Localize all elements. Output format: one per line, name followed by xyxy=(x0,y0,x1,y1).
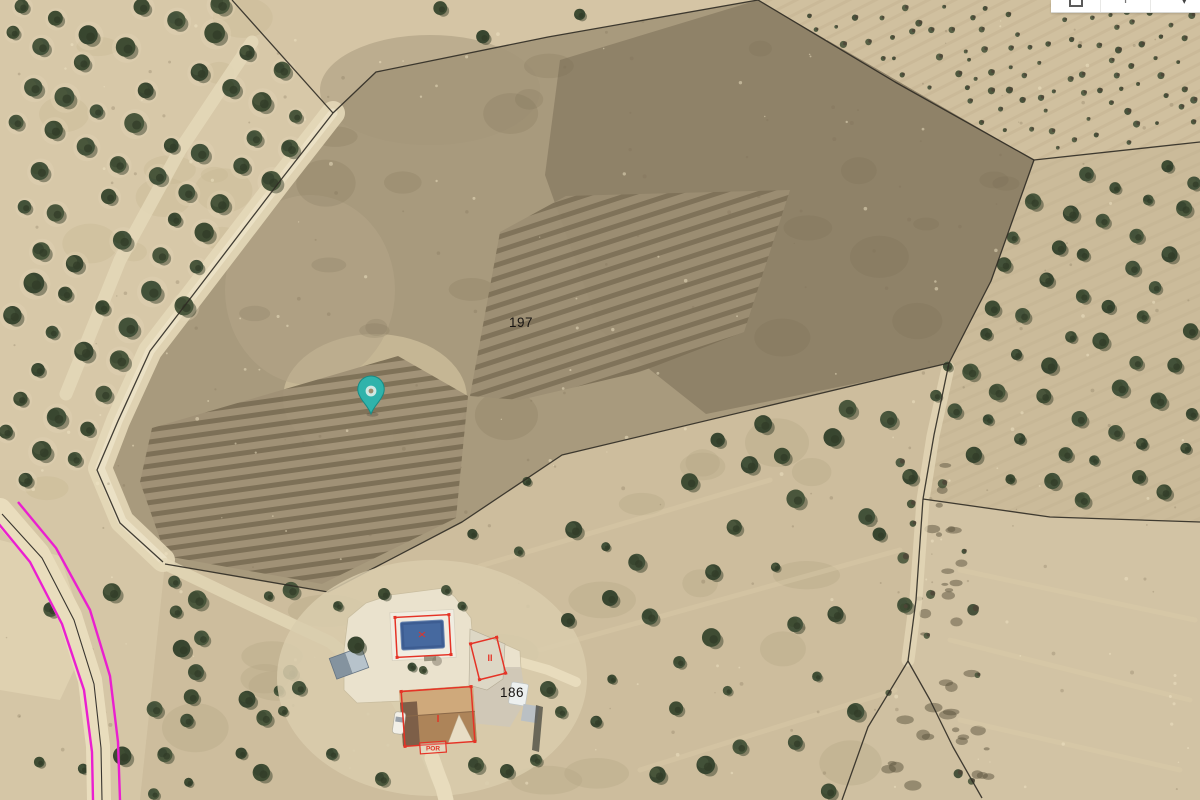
aerial-map[interactable]: IIIPOR197186 xyxy=(0,0,1200,800)
chevron-down-icon: ▾ xyxy=(1181,0,1188,7)
parcel-label-197: 197 xyxy=(509,315,533,330)
construction-label-I: I xyxy=(437,714,440,725)
square-icon xyxy=(1069,0,1083,7)
square-icon-button[interactable] xyxy=(1051,0,1100,12)
plus-icon-button[interactable]: + xyxy=(1100,0,1150,12)
chevron-down-button[interactable]: ▾ xyxy=(1150,0,1200,12)
plus-icon: + xyxy=(1119,0,1132,6)
construction-label-POR: POR xyxy=(426,746,440,753)
construction-label-II: II xyxy=(487,653,492,663)
map-toolbar: + ▾ xyxy=(1051,0,1200,13)
map-stage: IIIPOR197186 + ▾ xyxy=(0,0,1200,800)
parcel-label-186: 186 xyxy=(500,685,524,700)
